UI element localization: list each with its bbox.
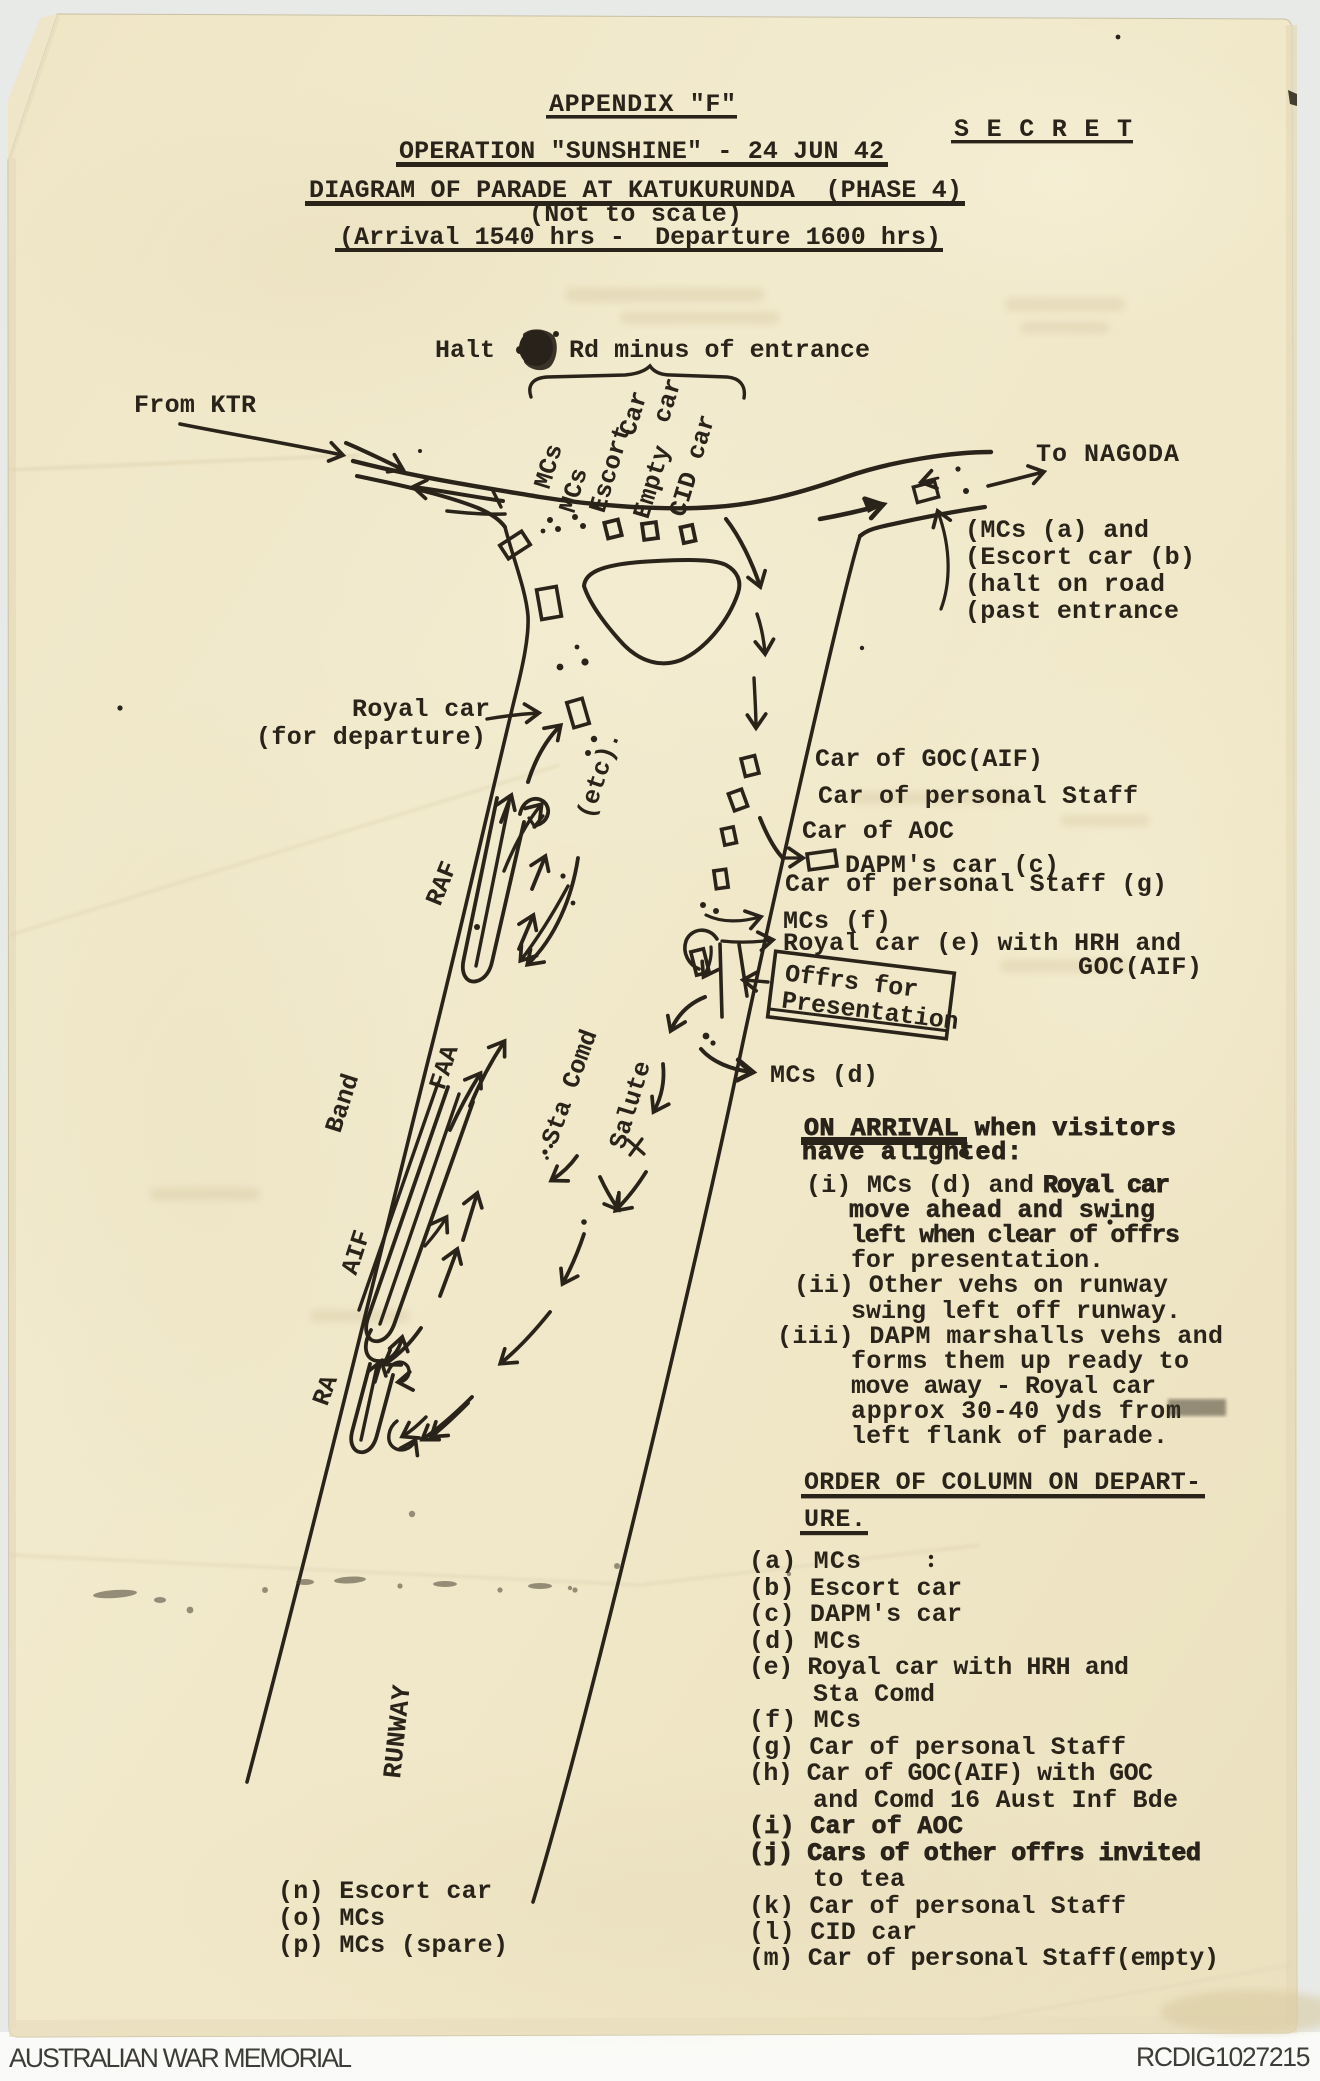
svg-text:Rd minus of entrance: Rd minus of entrance	[569, 336, 870, 365]
svg-text:(e) Royal car with HRH and: (e) Royal car with HRH and	[749, 1653, 1129, 1682]
svg-text:have alighted:: have alighted:	[802, 1138, 1022, 1167]
svg-text:URE.: URE.	[804, 1505, 866, 1534]
svg-text:MCs (d): MCs (d)	[770, 1061, 878, 1090]
svg-text:RCDIG1027215: RCDIG1027215	[1136, 2042, 1311, 2072]
svg-text:S E C R E T: S E C R E T	[954, 115, 1132, 144]
svg-text:APPENDIX "F": APPENDIX "F"	[549, 90, 736, 119]
svg-text:AUSTRALIAN WAR MEMORIAL: AUSTRALIAN WAR MEMORIAL	[9, 2043, 353, 2073]
svg-text:Car of GOC(AIF): Car of GOC(AIF)	[815, 745, 1043, 774]
svg-text:Car of AOC: Car of AOC	[802, 817, 954, 846]
svg-text:(for departure): (for departure)	[256, 723, 486, 752]
svg-text:(p) MCs (spare): (p) MCs (spare)	[278, 1931, 508, 1960]
svg-text:OPERATION "SUNSHINE" - 24 JUN: OPERATION "SUNSHINE" - 24 JUN 42	[399, 137, 884, 166]
svg-text:to tea: to tea	[813, 1865, 905, 1894]
svg-text:Halt: Halt	[435, 336, 495, 365]
svg-text:(a) MCs: (a) MCs	[749, 1547, 861, 1576]
svg-text:(i) Car of AOC: (i) Car of AOC	[749, 1812, 963, 1841]
svg-text:(d) MCs: (d) MCs	[749, 1627, 861, 1656]
svg-text:ORDER OF COLUMN ON DEPART-: ORDER OF COLUMN ON DEPART-	[804, 1468, 1201, 1497]
svg-text:(MCs (a) and: (MCs (a) and	[965, 516, 1149, 545]
svg-text:(o) MCs: (o) MCs	[278, 1904, 385, 1933]
svg-text:(f) MCs: (f) MCs	[749, 1706, 861, 1735]
svg-text:(j) Cars of other offrs invite: (j) Cars of other offrs invited	[749, 1839, 1201, 1868]
svg-text:(past entrance: (past entrance	[965, 597, 1179, 626]
svg-text:Car of personal Staff (g): Car of personal Staff (g)	[785, 870, 1167, 899]
svg-text:(n) Escort car: (n) Escort car	[278, 1877, 492, 1906]
svg-text:(halt on road: (halt on road	[965, 570, 1165, 599]
svg-text:(Escort car (b): (Escort car (b)	[965, 543, 1195, 572]
svg-text:(c) DAPM's car: (c) DAPM's car	[749, 1600, 962, 1629]
svg-text:and Comd 16 Aust Inf Bde: and Comd 16 Aust Inf Bde	[813, 1786, 1178, 1815]
svg-text:From KTR: From KTR	[134, 391, 256, 420]
svg-text:(k) Car of personal Staff: (k) Car of personal Staff	[749, 1892, 1126, 1921]
svg-text:left flank of parade.: left flank of parade.	[851, 1422, 1168, 1451]
svg-text:(h) Car of GOC(AIF) with GOC: (h) Car of GOC(AIF) with GOC	[749, 1759, 1153, 1788]
svg-text:(b) Escort car: (b) Escort car	[749, 1574, 962, 1603]
svg-text:(g) Car of personal Staff: (g) Car of personal Staff	[749, 1733, 1126, 1762]
svg-text:(m) Car of personal Staff(empt: (m) Car of personal Staff(empty)	[749, 1944, 1219, 1973]
svg-text:(ii) Other vehs on runway: (ii) Other vehs on runway	[794, 1271, 1168, 1300]
svg-text:(l) CID car: (l) CID car	[749, 1918, 917, 1947]
svg-text:To NAGODA: To NAGODA	[1036, 440, 1179, 469]
svg-text:Royal car: Royal car	[352, 695, 490, 724]
svg-text:Car of personal Staff: Car of personal Staff	[818, 782, 1138, 811]
svg-text:GOC(AIF): GOC(AIF)	[1078, 953, 1202, 982]
svg-text:(Arrival 1540 hrs - Departure: (Arrival 1540 hrs - Departure 1600 hrs)	[339, 223, 941, 252]
svg-text:Sta Comd: Sta Comd	[813, 1680, 935, 1709]
